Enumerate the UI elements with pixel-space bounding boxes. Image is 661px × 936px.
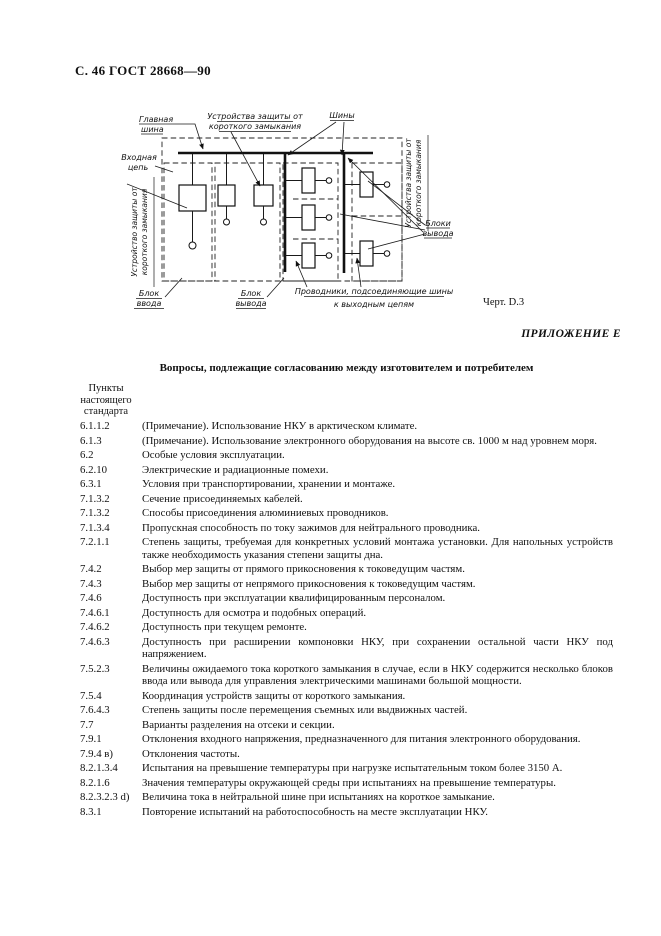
clause-row: 7.4.6.1Доступность для осмотра и подобны… [80, 607, 613, 620]
terminal [384, 251, 390, 257]
clause-row: 7.4.2Выбор мер защиты от прямого прикосн… [80, 563, 613, 576]
leader-line [342, 122, 344, 155]
clause-number: 7.5.2.3 [80, 663, 142, 688]
input-protective-device [179, 185, 206, 211]
clause-number: 7.1.3.4 [80, 522, 142, 535]
clause-row: 6.1.3(Примечание). Использование электро… [80, 435, 613, 448]
circuit-diagram-svg: Главная шина Устройства защиты от коротк… [108, 95, 472, 317]
clause-text: Доступность при текущем ремонте. [142, 621, 613, 634]
clause-text: Выбор мер защиты от прямого прикосновени… [142, 563, 613, 576]
clause-text: Особые условия эксплуатации. [142, 449, 613, 462]
appendix-label: ПРИЛОЖЕНИЕ Е [380, 328, 621, 340]
clause-row: 7.6.4.3Степень защиты после перемещения … [80, 704, 613, 717]
output-block [360, 241, 373, 266]
clause-text: Способы присоединения алюминиевых провод… [142, 507, 613, 520]
clause-text: Отклонения входного напряжения, предназн… [142, 733, 613, 746]
clause-text: Степень защиты после перемещения съемных… [142, 704, 613, 717]
terminal [326, 253, 332, 259]
clause-text: Отклонения частоты. [142, 748, 613, 761]
clause-text: Испытания на превышение температуры при … [142, 762, 613, 775]
input-unit-label: Блок [139, 289, 159, 298]
clause-row: 7.4.6Доступность при эксплуатации квалиф… [80, 592, 613, 605]
clause-number: 8.3.1 [80, 806, 142, 819]
output-device-2 [254, 185, 273, 206]
clause-text: Пропускная способность по току зажимов д… [142, 522, 613, 535]
clause-text: Повторение испытаний на работоспособност… [142, 806, 613, 819]
terminal [326, 178, 332, 184]
clause-text: (Примечание). Использование электронного… [142, 435, 613, 448]
clause-number: 7.7 [80, 719, 142, 732]
clause-row: 6.2.10Электрические и радиационные помех… [80, 464, 613, 477]
clause-number: 8.2.1.3.4 [80, 762, 142, 775]
clause-number: 6.1.3 [80, 435, 142, 448]
clause-row: 8.2.1.3.4Испытания на превышение темпера… [80, 762, 613, 775]
conductors-label: к выходным цепям [334, 300, 414, 309]
clause-row: 6.3.1Условия при транспортировании, хран… [80, 478, 613, 491]
clause-number: 7.1.3.2 [80, 507, 142, 520]
clause-number: 7.4.6.1 [80, 607, 142, 620]
clause-text: Выбор мер защиты от непрямого прикоснове… [142, 578, 613, 591]
terminal [261, 219, 267, 225]
clause-column-header-line: настоящего [74, 395, 138, 407]
clause-row: 8.2.3.2.3 d)Величина тока в нейтральной … [80, 791, 613, 804]
terminal [326, 215, 332, 221]
output-device-1 [218, 185, 235, 206]
circuit-diagram: Главная шина Устройства защиты от коротк… [108, 95, 472, 317]
clause-number: 8.2.1.6 [80, 777, 142, 790]
leader-line [368, 234, 425, 249]
clause-text: Сечение присоединяемых кабелей. [142, 493, 613, 506]
clause-number: 6.1.1.2 [80, 420, 142, 433]
page-header: С. 46 ГОСТ 28668—90 [75, 63, 211, 79]
clause-row: 7.4.3Выбор мер защиты от непрямого прико… [80, 578, 613, 591]
clause-text: Доступность для осмотра и подобных опера… [142, 607, 613, 620]
clause-text: Доступность при расширении компоновки НК… [142, 636, 613, 661]
clause-number: 6.2.10 [80, 464, 142, 477]
clause-number: 7.1.3.2 [80, 493, 142, 506]
buses-label: Шины [329, 111, 354, 120]
clause-number: 7.4.6.3 [80, 636, 142, 661]
clause-text: Координация устройств защиты от коротког… [142, 690, 613, 703]
clause-text: (Примечание). Использование НКУ в арктич… [142, 420, 613, 433]
input-unit-label: ввода [137, 299, 162, 308]
terminal [224, 219, 230, 225]
clause-row: 7.7Варианты разделения на отсеки и секци… [80, 719, 613, 732]
leader-line [231, 132, 260, 186]
clause-row: 7.5.2.3Величины ожидаемого тока коротког… [80, 663, 613, 688]
clause-row: 7.5.4Координация устройств защиты от кор… [80, 690, 613, 703]
clause-number: 7.4.6 [80, 592, 142, 605]
scp-top-label: короткого замыкания [209, 122, 301, 131]
output-unit-label: Блок [241, 289, 261, 298]
clause-row: 7.9.4 в)Отклонения частоты. [80, 748, 613, 761]
clause-column-header-line: Пункты [74, 383, 138, 395]
clause-text: Величина тока в нейтральной шине при исп… [142, 791, 613, 804]
section-title: Вопросы, подлежащие согласованию между и… [80, 362, 613, 374]
output-units-label: Блоки [425, 219, 451, 228]
input-circuit-label: цепь [128, 163, 149, 172]
output-block [302, 243, 315, 268]
clause-text: Варианты разделения на отсеки и секции. [142, 719, 613, 732]
input-unit-box [164, 163, 212, 281]
clause-row: 6.2Особые условия эксплуатации. [80, 449, 613, 462]
scp-left-label: Устройство защиты от [130, 187, 139, 277]
scp-left-label: короткого замыкания [140, 188, 149, 275]
clause-row: 7.9.1Отклонения входного напряжения, пре… [80, 733, 613, 746]
leader-line [175, 124, 203, 149]
clause-number: 7.4.2 [80, 563, 142, 576]
document-page: С. 46 ГОСТ 28668—90 [0, 0, 661, 936]
clause-row: 7.1.3.2Сечение присоединяемых кабелей. [80, 493, 613, 506]
output-block [302, 168, 315, 193]
output-block [302, 205, 315, 230]
clause-number: 6.3.1 [80, 478, 142, 491]
clause-number: 7.4.6.2 [80, 621, 142, 634]
clause-text: Условия при транспортировании, хранении … [142, 478, 613, 491]
clause-row: 7.4.6.2Доступность при текущем ремонте. [80, 621, 613, 634]
clause-text: Значения температуры окружающей среды пр… [142, 777, 613, 790]
clause-row: 8.2.1.6Значения температуры окружающей с… [80, 777, 613, 790]
clause-row: 7.1.3.4Пропускная способность по току за… [80, 522, 613, 535]
clause-number: 8.2.3.2.3 d) [80, 791, 142, 804]
clause-text: Электрические и радиационные помехи. [142, 464, 613, 477]
clause-number: 6.2 [80, 449, 142, 462]
clause-number: 7.5.4 [80, 690, 142, 703]
clause-row: 8.3.1Повторение испытаний на работоспосо… [80, 806, 613, 819]
clause-number: 7.6.4.3 [80, 704, 142, 717]
clause-row: 7.2.1.1Степень защиты, требуемая для кон… [80, 536, 613, 561]
main-bus-label: шина [141, 125, 164, 134]
clause-text: Доступность при эксплуатации квалифициро… [142, 592, 613, 605]
clause-row: 7.4.6.3Доступность при расширении компон… [80, 636, 613, 661]
output-unit-label: вывода [235, 299, 266, 308]
main-bus-label: Главная [139, 115, 173, 124]
clause-column-header: Пункты настоящего стандарта [74, 383, 138, 418]
clause-row: 6.1.1.2(Примечание). Использование НКУ в… [80, 420, 613, 433]
terminal [384, 182, 390, 188]
items-list: 6.1.1.2(Примечание). Использование НКУ в… [80, 420, 613, 820]
scp-right-label: короткого замыкания [414, 139, 423, 226]
terminal [189, 242, 196, 249]
clause-number: 7.4.3 [80, 578, 142, 591]
clause-text: Степень защиты, требуемая для конкретных… [142, 536, 613, 561]
scp-top-label: Устройства защиты от [207, 112, 303, 121]
clause-number: 7.9.4 в) [80, 748, 142, 761]
figure-caption: Черт. D.3 [483, 297, 524, 308]
clause-row: 7.1.3.2Способы присоединения алюминиевых… [80, 507, 613, 520]
clause-column-header-line: стандарта [74, 406, 138, 418]
clause-number: 7.2.1.1 [80, 536, 142, 561]
output-units-label: вывода [422, 229, 453, 238]
input-circuit-label: Входная [121, 153, 157, 162]
clause-number: 7.9.1 [80, 733, 142, 746]
conductors-label: Проводники, подсоединяющие шины [295, 287, 453, 296]
clause-text: Величины ожидаемого тока короткого замык… [142, 663, 613, 688]
